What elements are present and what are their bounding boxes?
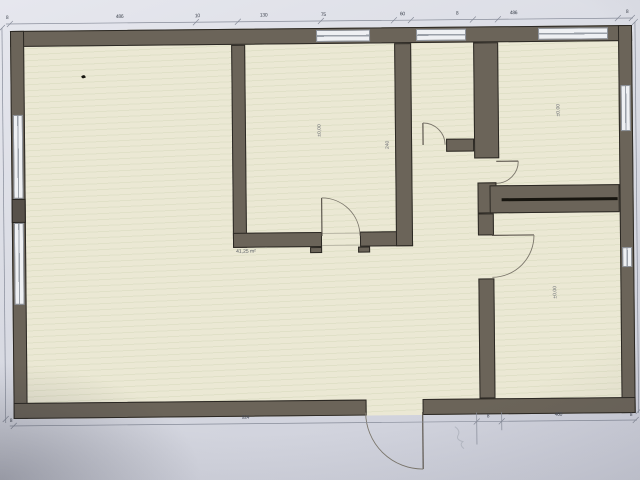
dimension-line-top (6, 18, 633, 24)
screen-photo: 8 486 10 130 75 60 8 486 8 8 924 8 460 8… (0, 0, 640, 480)
door-1-arc (322, 198, 360, 236)
dim-top-5: 75 (321, 13, 326, 18)
door-4-arc (492, 235, 534, 277)
room-label-right-top: ±0,00 (556, 104, 561, 117)
dimension-ticks-sides (0, 19, 640, 422)
door-2-arc (423, 123, 445, 145)
smudge-mark (455, 427, 464, 449)
dimension-line-right (635, 22, 639, 413)
area-label-big-room: 41,25 m² (236, 250, 256, 255)
room-label-right-bottom: ±0,00 (553, 286, 558, 299)
room-label-middle: ±0,00 (318, 124, 323, 137)
dim-top-3: 10 (195, 14, 200, 19)
wall-label-hall: 240 (386, 141, 391, 149)
dim-top-8: 486 (510, 11, 518, 16)
door-5-arc (366, 412, 424, 470)
dim-top-9: 8 (626, 10, 629, 15)
dimension-lines (0, 15, 640, 449)
dim-top-1: 8 (6, 16, 9, 21)
floorplan: 8 486 10 130 75 60 8 486 8 8 924 8 460 8… (0, 0, 640, 480)
dim-top-6: 60 (400, 12, 405, 17)
dim-bottom-4: 460 (555, 413, 563, 418)
door-5-leaf (423, 412, 424, 469)
dim-top-4: 130 (260, 13, 268, 18)
dim-bottom-3: 8 (487, 414, 490, 419)
dim-bottom-5: 8 (630, 413, 633, 418)
plan-linework (0, 0, 640, 480)
dim-bottom-2: 924 (242, 416, 250, 421)
extension-lines (477, 412, 502, 444)
dimension-line-left (2, 28, 6, 423)
door-3-arc (496, 161, 518, 183)
dim-top-2: 486 (116, 15, 124, 20)
dimension-line-bottom (10, 420, 637, 426)
dim-bottom-1: 8 (10, 419, 13, 424)
floorplan-photo: 8 486 10 130 75 60 8 486 8 8 924 8 460 8… (0, 0, 640, 480)
dim-top-7: 8 (456, 12, 459, 17)
